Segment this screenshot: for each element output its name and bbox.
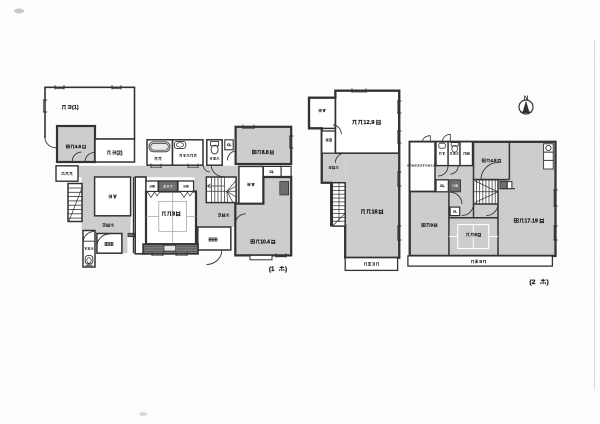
svg-text:): ) — [285, 266, 287, 273]
svg-text:18: 18 — [371, 210, 377, 216]
svg-text:CL: CL — [440, 184, 444, 188]
svg-text:8: 8 — [172, 211, 175, 217]
svg-text:CL: CL — [453, 209, 457, 213]
svg-text:10.4: 10.4 — [260, 239, 270, 245]
svg-text:CL: CL — [269, 170, 274, 174]
svg-text:(1): (1) — [72, 105, 79, 111]
svg-text:4.5: 4.5 — [75, 144, 82, 149]
svg-text:): ) — [546, 279, 548, 286]
svg-text:9: 9 — [430, 223, 433, 228]
svg-text:(1: (1 — [269, 266, 275, 273]
svg-text:(2: (2 — [529, 279, 535, 286]
svg-text:17.19: 17.19 — [524, 218, 538, 224]
svg-text:CL: CL — [227, 143, 232, 147]
svg-text:(2): (2) — [116, 150, 122, 156]
svg-text:12.9: 12.9 — [363, 120, 375, 126]
svg-text:8.8: 8.8 — [262, 150, 269, 156]
svg-text:N: N — [524, 95, 529, 102]
